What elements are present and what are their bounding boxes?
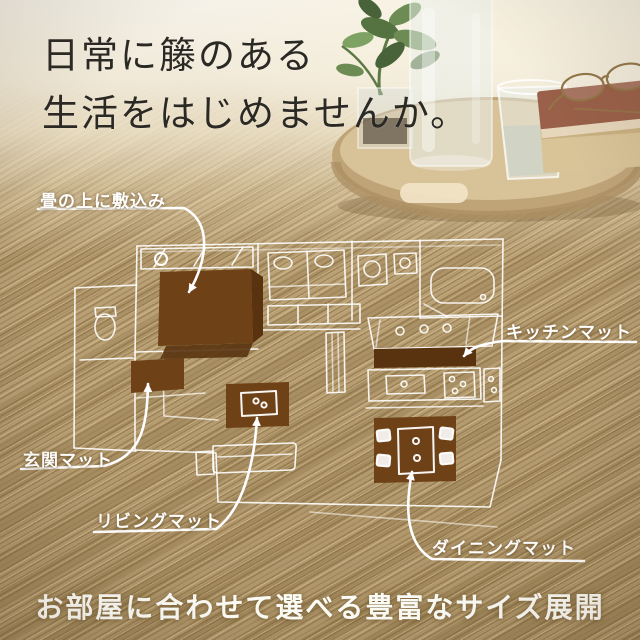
dining-chair bbox=[439, 427, 453, 440]
label-tatami-mat: 畳の上に敷込み bbox=[40, 187, 166, 212]
washing-machine bbox=[358, 254, 387, 286]
label-dining-mat: ダイニングマット bbox=[432, 534, 576, 559]
tatami-mat-side bbox=[251, 269, 263, 343]
label-entrance-mat: 玄関マット bbox=[23, 446, 113, 471]
dining-chair bbox=[376, 454, 390, 466]
kitchen-shelf bbox=[368, 314, 498, 349]
entrance-mat-highlight bbox=[131, 358, 184, 393]
tatami-mat-highlight bbox=[158, 269, 253, 346]
footer-caption: お部屋に合わせて選べる豊富なサイズ展開 bbox=[0, 586, 640, 626]
kitchen-mat-highlight bbox=[374, 347, 476, 368]
arrow-to-kitchen-mat bbox=[464, 341, 636, 356]
dining-chair bbox=[377, 429, 391, 441]
label-kitchen-mat: キッチンマット bbox=[506, 318, 632, 343]
dining-chair bbox=[440, 452, 454, 464]
toilet bbox=[95, 314, 115, 340]
product-hero-image: 日常に籐のある 生活をはじめませんか。 bbox=[0, 0, 640, 640]
label-living-mat: リビングマット bbox=[96, 507, 222, 532]
